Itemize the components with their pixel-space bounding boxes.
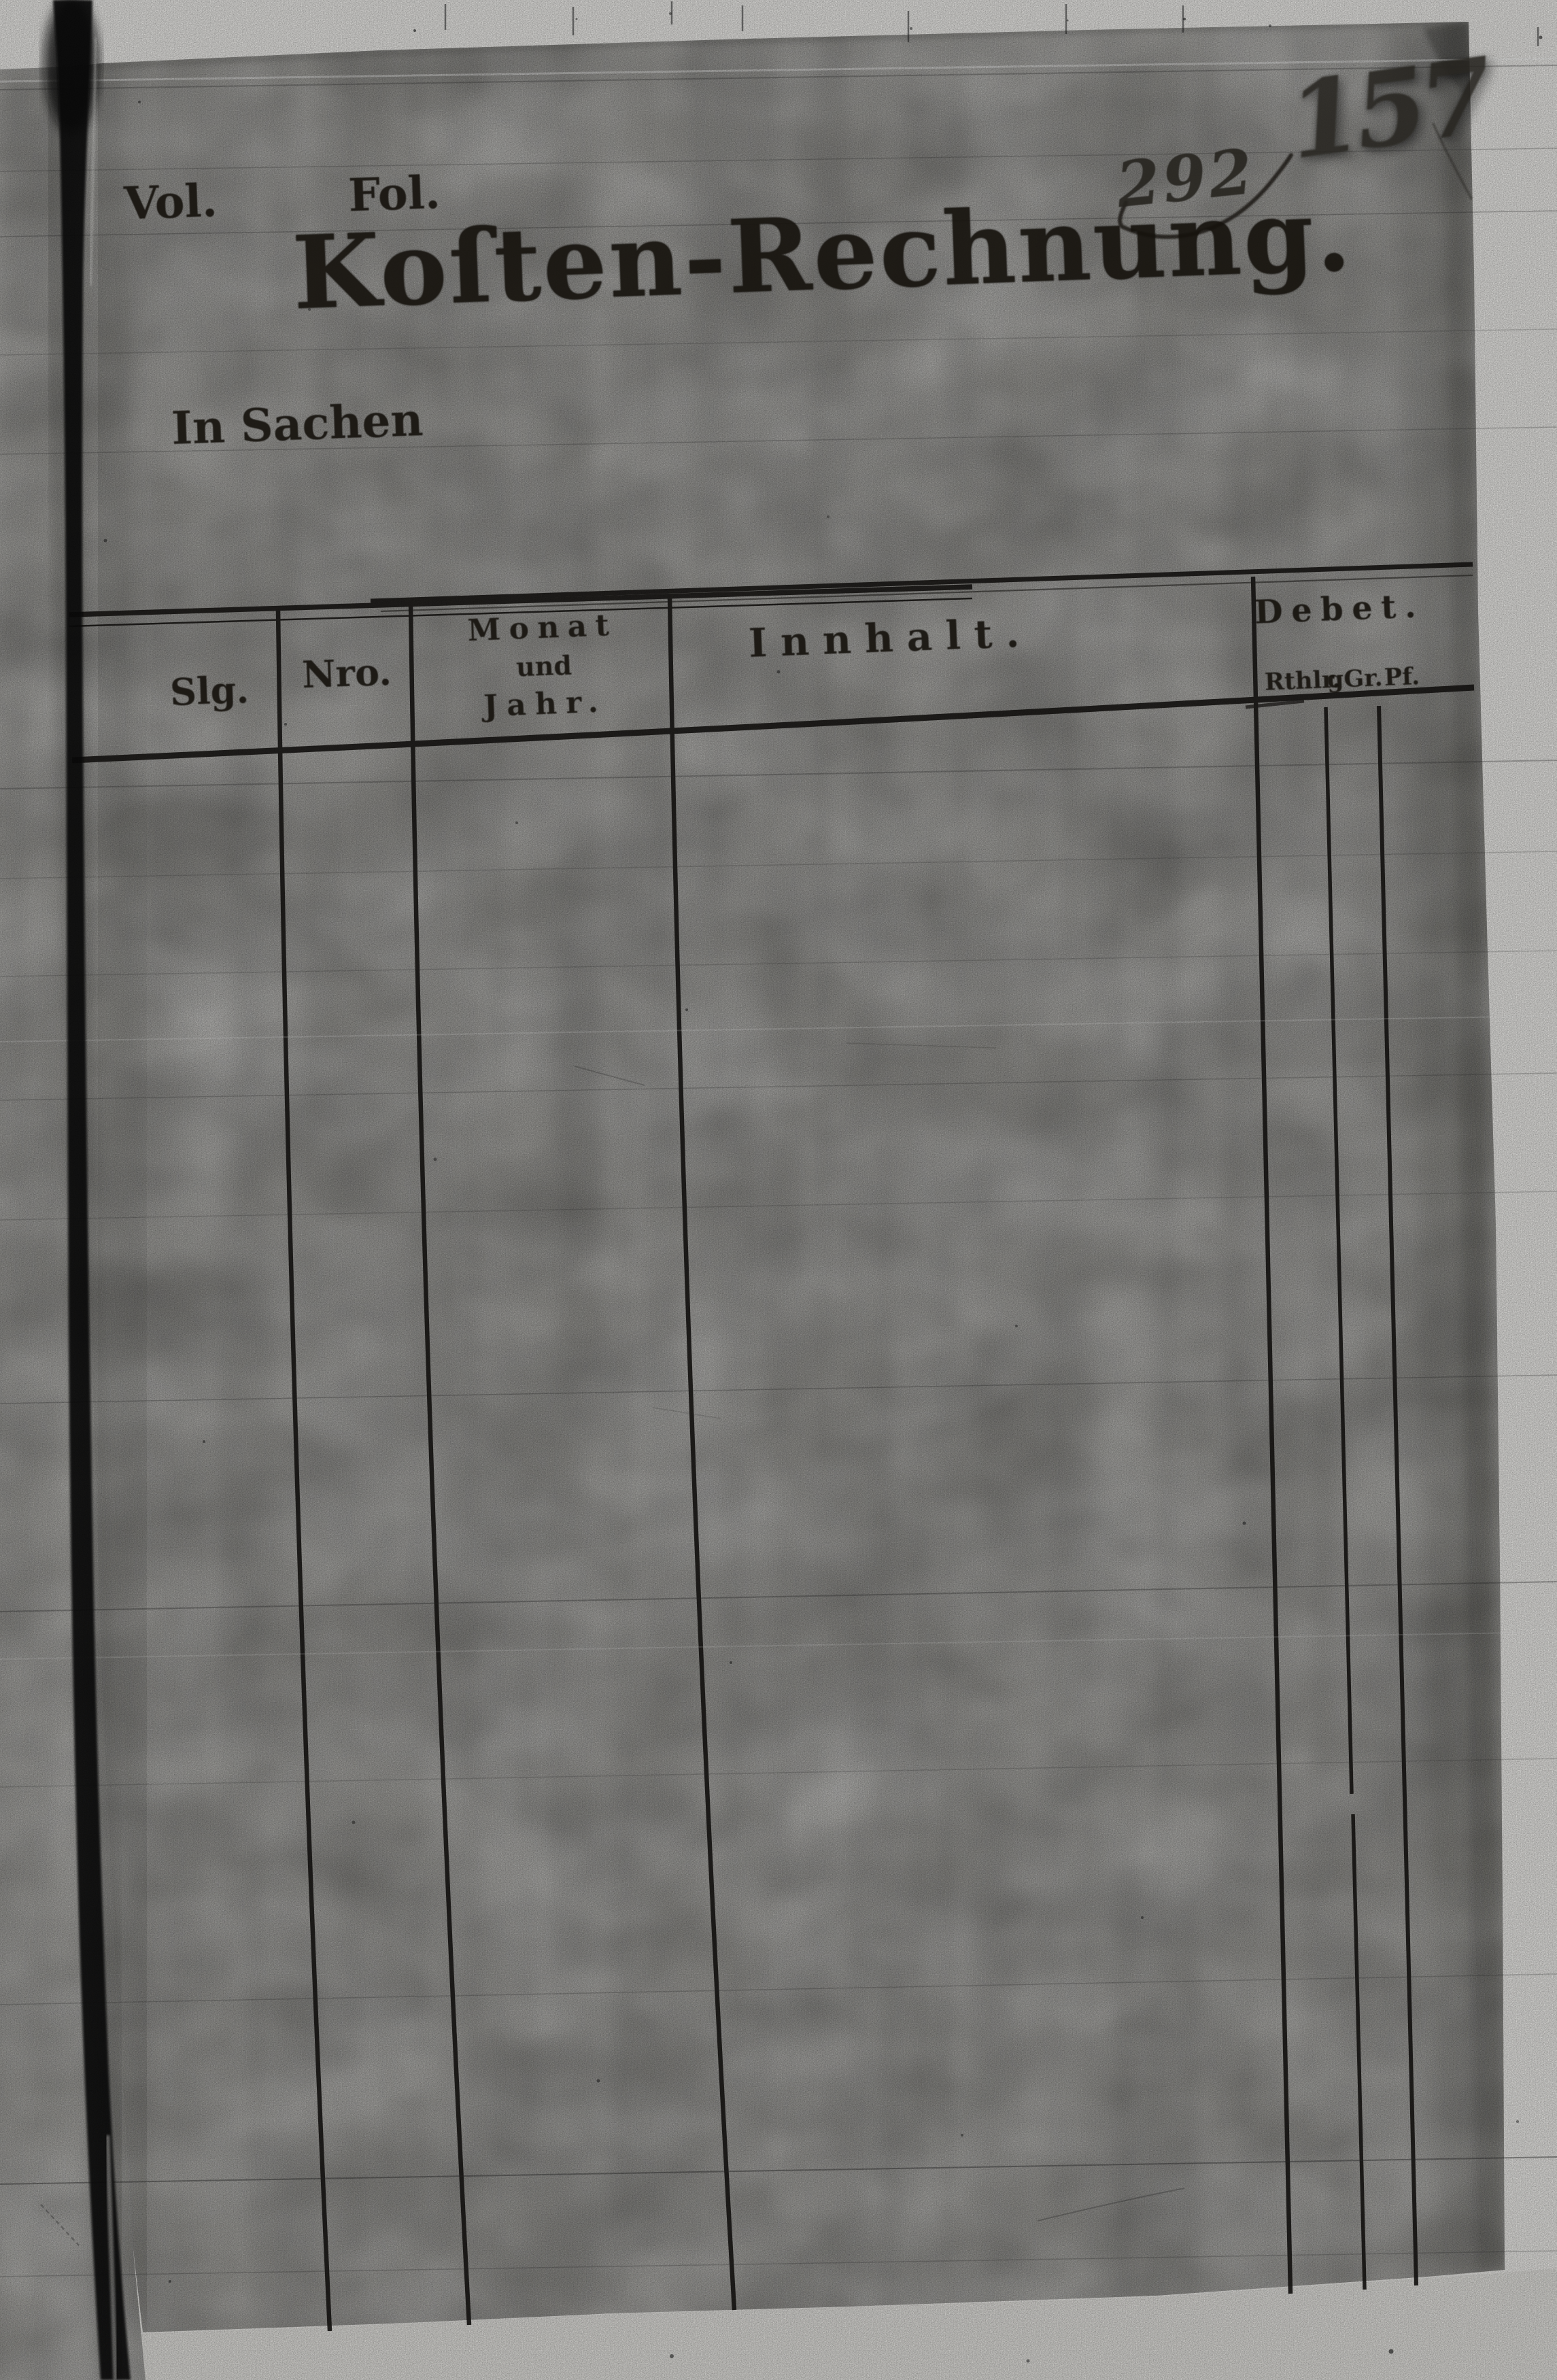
column-header-nro: Nro.: [298, 650, 395, 697]
column-header-debet: Debet.: [1247, 587, 1432, 632]
subheader-ggr: gGr.: [1327, 664, 1383, 694]
handwritten-number-292: 292: [1113, 135, 1259, 222]
subheader-pf: Pf.: [1384, 662, 1420, 692]
column-header-slg: Slg.: [168, 668, 251, 714]
vol-label: Vol.: [116, 173, 226, 231]
jahr-line: Jahr.: [439, 681, 651, 728]
debet-subheader-row: Rthlr. gGr. Pf.: [1261, 662, 1439, 702]
scanned-ledger-page: Vol. Fol. Koſten-Rechnung. In Sachen Slg…: [0, 0, 1557, 2380]
column-header-monat-jahr: Monat und Jahr.: [437, 605, 651, 728]
monat-line: Monat: [437, 605, 649, 651]
film-grain: [0, 0, 1557, 2380]
scan-artifacts: [0, 0, 1557, 2380]
case-intro-label: In Sachen: [171, 392, 444, 455]
